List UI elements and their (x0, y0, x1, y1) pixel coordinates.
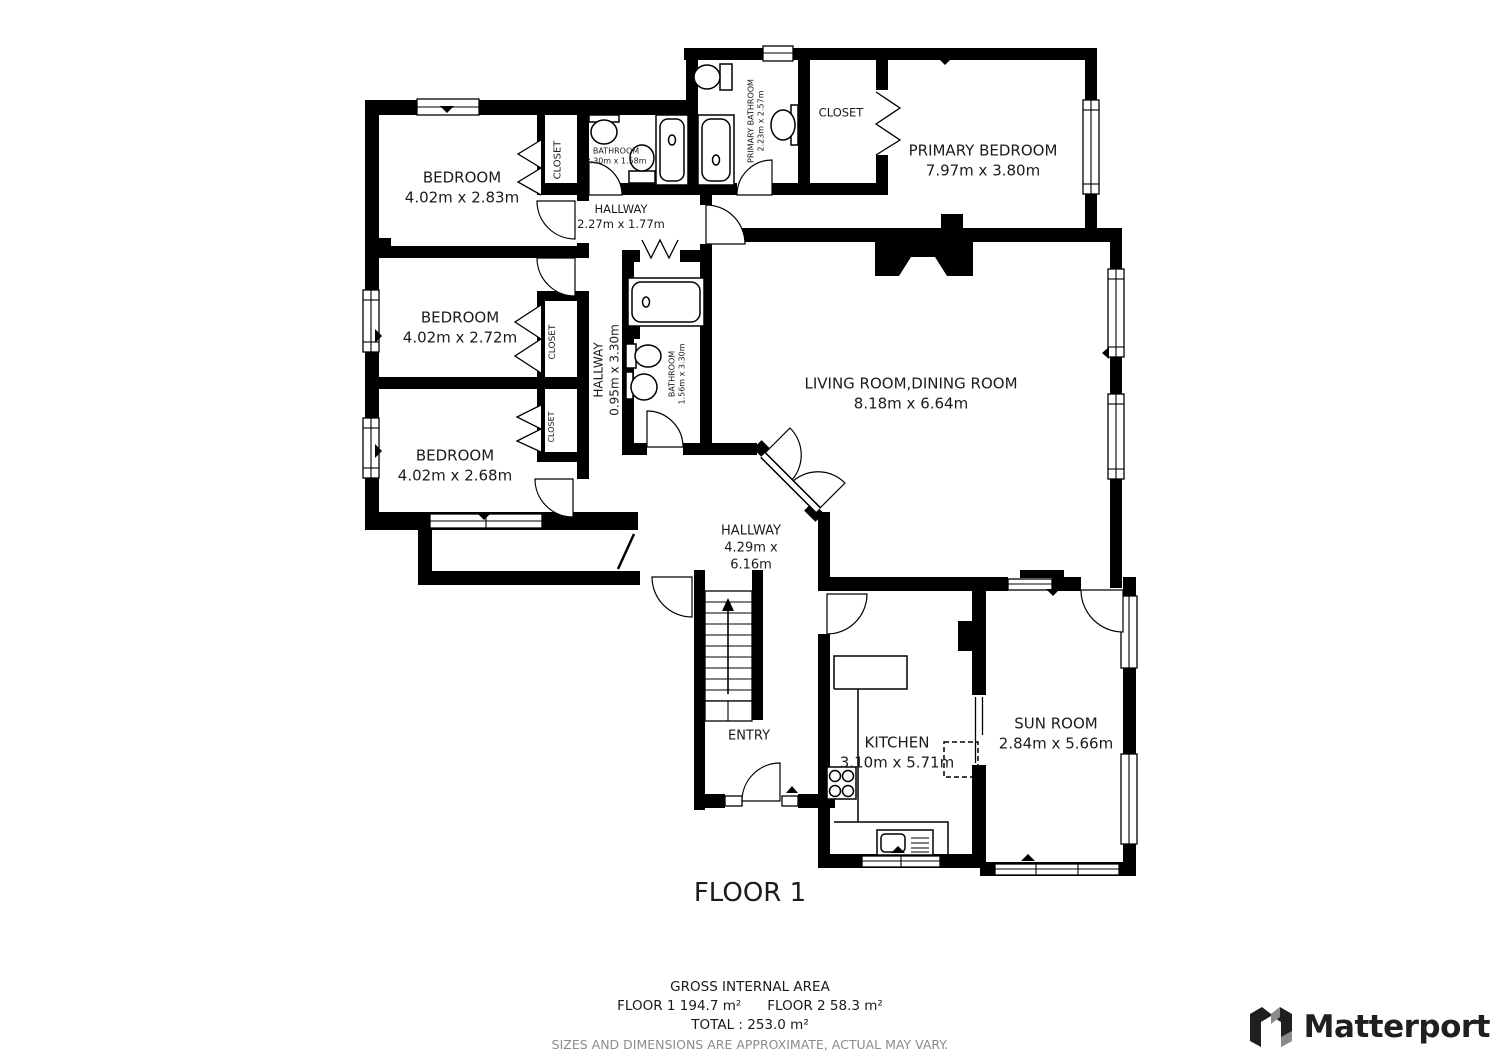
floor-title: FLOOR 1 (694, 877, 806, 911)
area-heading: GROSS INTERNAL AREA (0, 979, 1500, 995)
floorplan-page: BEDROOM4.02m x 2.83m BEDROOM4.02m x 2.72… (0, 0, 1500, 1061)
room-dims: 4.02m x 2.83m (405, 188, 519, 208)
bathtub-icon (656, 115, 688, 185)
room-name: HALLWAY (708, 524, 794, 541)
bifold-door-icon (876, 92, 900, 155)
room-name: BEDROOM (403, 309, 517, 329)
window (1008, 579, 1052, 590)
room-label-entry: ENTRY (728, 729, 770, 746)
room-label-hallway-top: HALLWAY2.27m x 1.77m (577, 202, 665, 232)
door-arc (647, 411, 683, 447)
staircase (705, 591, 752, 721)
room-dims: 2.23m x 2.57m (757, 79, 767, 163)
room-name: KITCHEN (840, 734, 954, 754)
window (763, 46, 793, 61)
room-name: CLOSET (819, 106, 864, 121)
toilet-icon (694, 64, 732, 90)
bathtub-icon (628, 278, 704, 326)
room-name: PRIMARY BEDROOM (909, 142, 1058, 162)
window (862, 856, 940, 867)
room-label-primary-bedroom: PRIMARY BEDROOM7.97m x 3.80m (909, 142, 1058, 181)
room-label-bathroom-top: BATHROOM2.30m x 1.58m (585, 147, 646, 168)
counter (834, 656, 907, 689)
floor2-area: FLOOR 2 58.3 m² (767, 998, 883, 1014)
matterport-wordmark: Matterport (1304, 1009, 1490, 1045)
room-label-kitchen: KITCHEN3.10m x 5.71m (840, 734, 954, 773)
sink-icon (589, 115, 619, 144)
door-arc (827, 594, 867, 634)
room-dims: 7.97m x 3.80m (909, 161, 1058, 181)
room-dims: 4.02m x 2.72m (403, 328, 517, 348)
room-dims: 4.02m x 2.68m (398, 466, 512, 486)
bathtub-icon (698, 115, 734, 185)
room-name: HALLWAY (591, 324, 607, 416)
door-arc (737, 160, 772, 195)
floor1-area: FLOOR 1 194.7 m² (617, 998, 741, 1014)
room-dims: 4.29m x 6.16m (708, 541, 794, 575)
room-name: BATHROOM (585, 147, 646, 157)
room-label-bedroom1: BEDROOM4.02m x 2.83m (405, 169, 519, 208)
room-label-closet2: CLOSET (548, 325, 560, 360)
room-name: CLOSET (548, 325, 560, 360)
room-label-closet3: CLOSET (547, 411, 557, 442)
room-dims: 3.10m x 5.71m (840, 753, 954, 773)
door-arc (652, 577, 692, 617)
room-label-closet-primary: CLOSET (819, 106, 864, 121)
window (995, 864, 1119, 875)
room-dims: 2.84m x 5.66m (999, 734, 1113, 754)
room-name: SUN ROOM (999, 715, 1113, 735)
room-name: BEDROOM (405, 169, 519, 189)
room-name: HALLWAY (577, 202, 665, 217)
room-label-living: LIVING ROOM,DINING ROOM8.18m x 6.64m (804, 375, 1017, 414)
door-arc (706, 205, 745, 244)
door-arc (537, 258, 575, 296)
room-label-bedroom2: BEDROOM4.02m x 2.72m (403, 309, 517, 348)
room-label-hallway-main: HALLWAY 4.29m x 6.16m (708, 524, 794, 575)
door-arc (535, 479, 573, 517)
window (1121, 754, 1137, 844)
room-name: PRIMARY BATHROOM (747, 79, 757, 163)
window (1108, 269, 1124, 357)
room-name: LIVING ROOM,DINING ROOM (804, 375, 1017, 395)
porch-door-leaf (618, 534, 634, 569)
room-name: CLOSET (547, 411, 557, 442)
window (1083, 100, 1099, 194)
toilet-icon (626, 344, 661, 368)
window (1108, 394, 1124, 479)
door-arc (1081, 590, 1123, 632)
door-arc (537, 201, 575, 239)
matterport-mark-icon (1247, 1004, 1293, 1050)
bifold-door-icon (642, 240, 678, 258)
matterport-logo: Matterport (1247, 1004, 1490, 1050)
room-dims: 2.27m x 1.77m (577, 217, 665, 232)
room-name: BATHROOM (668, 343, 678, 404)
sink-icon (771, 105, 798, 145)
room-label-primary-bathroom: PRIMARY BATHROOM2.23m x 2.57m (747, 79, 768, 163)
room-label-sunroom: SUN ROOM2.84m x 5.66m (999, 715, 1113, 754)
room-name: BEDROOM (398, 447, 512, 467)
room-dims: 8.18m x 6.64m (804, 394, 1017, 414)
kitchen-sink-icon (877, 830, 933, 855)
window (363, 290, 379, 352)
sink-icon (626, 372, 657, 400)
door-arc (742, 763, 780, 801)
room-dims: 2.30m x 1.58m (585, 157, 646, 167)
room-label-bedroom3: BEDROOM4.02m x 2.68m (398, 447, 512, 486)
room-dims: 1.56m x 3.30m (678, 343, 688, 404)
fireplace-icon (875, 214, 973, 276)
room-name: CLOSET (552, 141, 565, 180)
room-label-hallway-mid: HALLWAY0.95m x 3.30m (591, 324, 622, 416)
room-label-closet1: CLOSET (552, 141, 565, 180)
room-label-bathroom-mid: BATHROOM1.56m x 3.30m (668, 343, 689, 404)
room-dims: 0.95m x 3.30m (607, 324, 623, 416)
room-name: ENTRY (728, 729, 770, 746)
